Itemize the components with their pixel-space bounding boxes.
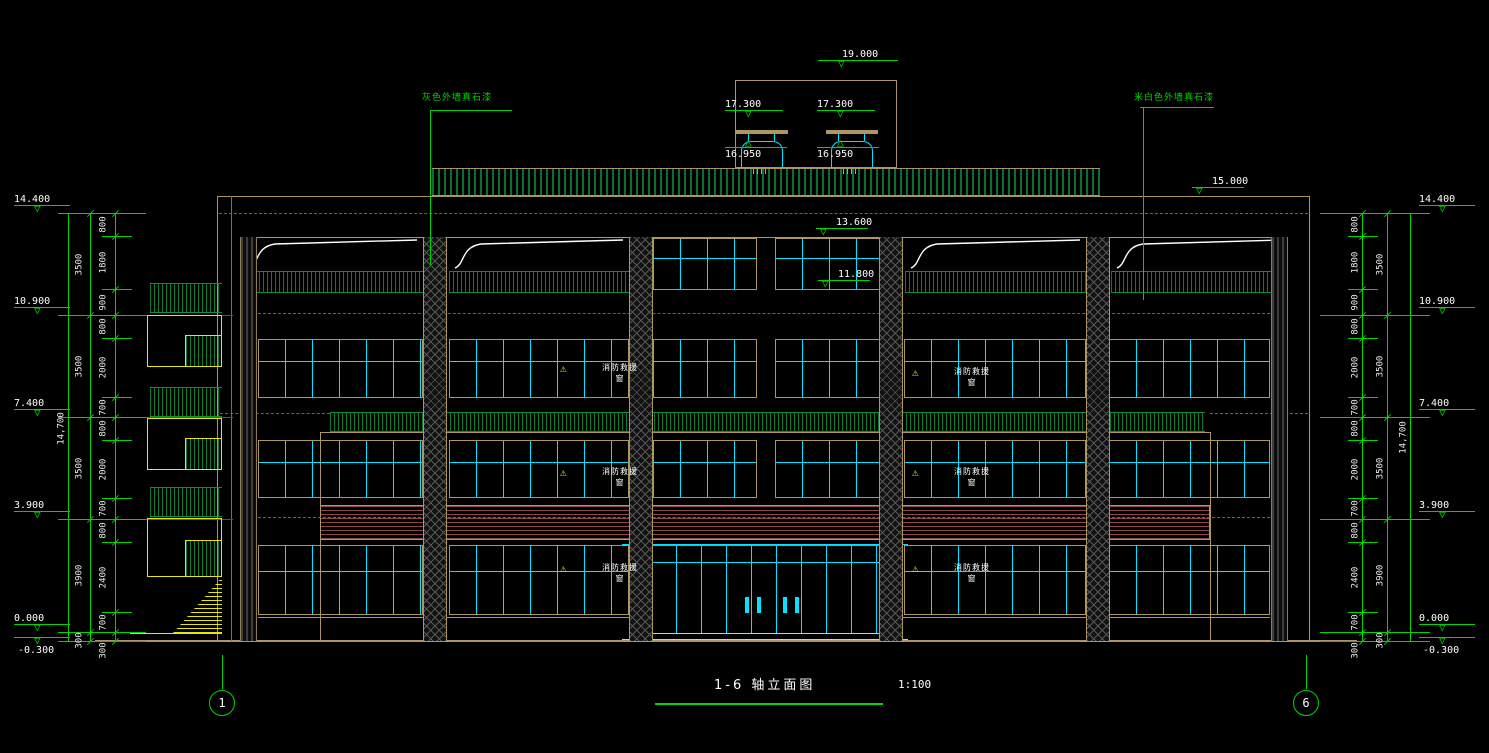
triangle-down-icon: ▽: [838, 58, 845, 69]
entrance-curtain-wall: [652, 545, 880, 633]
window: [904, 545, 1086, 615]
stair-profile: [173, 577, 222, 633]
dim-value: 3500: [1376, 347, 1387, 387]
warning-triangle-icon: ⚠: [912, 562, 919, 575]
dim-value: 300: [75, 621, 86, 661]
awning-curve: [905, 237, 1086, 271]
inner-box-top: [320, 432, 1210, 433]
dim-total: 14,700: [57, 409, 68, 449]
dim-line: [1387, 213, 1388, 642]
floor-line: [258, 517, 1270, 518]
triangle-down-icon: ▽: [822, 278, 829, 289]
dim-line: [115, 213, 116, 642]
elevation-marker: 16.950△: [725, 136, 787, 158]
dim-total: 14,700: [1399, 418, 1410, 458]
stair-base-line: [130, 633, 222, 634]
dim-value: 2000: [99, 450, 110, 490]
triangle-down-icon: ▽: [1439, 622, 1446, 633]
triangle-down-icon: ▽: [745, 108, 752, 119]
triangle-down-icon: ▽: [1196, 185, 1203, 196]
dim-ext: [1320, 417, 1430, 418]
drawing-title: 1-6 轴立面图: [714, 674, 815, 693]
window: [904, 440, 1086, 498]
balcony-railing: [905, 271, 1086, 293]
material-label-right: 米白色外墙真石漆: [1134, 90, 1214, 103]
window: [653, 238, 757, 290]
balcony-railing: [243, 271, 423, 293]
end-wall: [240, 237, 257, 641]
triangle-up-icon: △: [745, 137, 752, 148]
facade-column: [423, 237, 447, 641]
dim-value: 2000: [99, 348, 110, 388]
vent-cap: [736, 130, 788, 134]
door-handle: [783, 597, 787, 613]
elevation-marker: 19.000▽: [818, 49, 898, 71]
floor-line: [220, 413, 330, 414]
vent-mark: [843, 169, 857, 174]
triangle-down-icon: ▽: [1439, 407, 1446, 418]
door-handle: [745, 597, 749, 613]
triangle-down-icon: ▽: [34, 635, 41, 646]
balcony-railing-band: [330, 412, 1205, 432]
dim-line: [68, 213, 69, 642]
dim-line: [1362, 213, 1363, 642]
window: [1109, 339, 1270, 398]
facade-column: [1086, 237, 1110, 641]
triangle-down-icon: ▽: [1439, 305, 1446, 316]
axis-line: [222, 655, 223, 689]
balcony-railing: [449, 271, 629, 293]
triangle-down-icon: ▽: [34, 305, 41, 316]
leader-line: [430, 110, 431, 265]
dim-value: 800: [1351, 409, 1362, 449]
entrance-step: [622, 639, 908, 640]
title-underline: [655, 703, 883, 705]
triangle-down-icon: ▽: [1439, 635, 1446, 646]
warning-triangle-icon: ⚠: [912, 466, 919, 479]
window: [1109, 545, 1270, 615]
dim-value: 1800: [1351, 243, 1362, 283]
dim-value: 3500: [1376, 245, 1387, 285]
dim-value: 2400: [99, 558, 110, 598]
triangle-down-icon: ▽: [820, 226, 827, 237]
elevation-marker: 17.300▽: [817, 99, 875, 121]
axis-line: [1306, 655, 1307, 689]
dim-value: 800: [1351, 307, 1362, 347]
wing-louver: [185, 438, 222, 470]
triangle-down-icon: ▽: [1439, 509, 1446, 520]
wing-railing: [150, 283, 222, 313]
awning-curve: [449, 237, 629, 271]
awning-curve: [243, 237, 423, 271]
dim-line: [90, 213, 91, 642]
wing-louver: [185, 540, 222, 577]
awning-curve: [1111, 237, 1288, 271]
drawing-scale: 1:100: [898, 678, 931, 691]
dim-value: 800: [99, 205, 110, 245]
dim-ext: [1320, 315, 1430, 316]
triangle-down-icon: ▽: [1439, 203, 1446, 214]
door-handle: [795, 597, 799, 613]
elevation-marker: -0.300▽: [1419, 635, 1475, 657]
elevation-marker: 16.950△: [817, 136, 879, 158]
dim-value: 800: [1351, 205, 1362, 245]
vent-mark: [753, 169, 767, 174]
sill-line: [880, 617, 1270, 618]
window: [258, 339, 423, 398]
axis-bubble-6: 6: [1293, 690, 1319, 716]
dim-value: 800: [1351, 511, 1362, 551]
warning-triangle-icon: ⚠: [912, 366, 919, 379]
window: [258, 545, 423, 615]
dim-value: 3900: [1376, 556, 1387, 596]
dim-value: 2000: [1351, 450, 1362, 490]
dim-value: 800: [99, 307, 110, 347]
window: [775, 440, 880, 498]
wall-edge-line: [231, 196, 232, 641]
dim-value: 800: [99, 409, 110, 449]
sill-line: [258, 617, 652, 618]
balcony-railing: [1111, 271, 1288, 293]
leader-line: [430, 110, 512, 111]
elevation-marker: 17.300▽: [725, 99, 783, 121]
dim-value: 2400: [1351, 558, 1362, 598]
wing-railing: [150, 487, 222, 517]
material-label-left: 灰色外墙真石漆: [422, 90, 492, 103]
dim-ext: [1320, 213, 1430, 214]
warning-triangle-icon: ⚠: [560, 562, 567, 575]
dim-value: 3500: [75, 449, 86, 489]
triangle-down-icon: ▽: [34, 407, 41, 418]
triangle-up-icon: △: [837, 137, 844, 148]
dim-value: 300: [1376, 621, 1387, 661]
dim-ext: [1320, 519, 1430, 520]
dim-value: 3500: [1376, 449, 1387, 489]
warning-triangle-icon: ⚠: [560, 362, 567, 375]
warning-triangle-icon: ⚠: [560, 466, 567, 479]
elevation-drawing-canvas: ⚠消防救援窗 ⚠消防救援窗 ⚠消防救援窗 ⚠消防救援窗 ⚠消防救援窗 ⚠消防救援…: [0, 0, 1489, 753]
dim-value: 800: [99, 511, 110, 551]
door-handle: [757, 597, 761, 613]
dim-line: [1410, 213, 1411, 642]
louver-band: [320, 505, 1210, 540]
dim-value: 3500: [75, 245, 86, 285]
entrance-step: [632, 633, 898, 634]
roof-slab-line: [219, 213, 1308, 214]
elevation-marker: -0.300▽: [14, 635, 70, 657]
facade-column: [879, 237, 903, 641]
window: [775, 339, 880, 398]
floor-line: [258, 313, 1270, 314]
wing-railing: [150, 387, 222, 417]
dim-value: 2000: [1351, 348, 1362, 388]
window: [653, 440, 757, 498]
axis-bubble-1: 1: [209, 690, 235, 716]
floor-line: [1210, 413, 1308, 414]
triangle-down-icon: ▽: [34, 203, 41, 214]
end-wall: [1271, 237, 1288, 641]
dim-value: 3500: [75, 347, 86, 387]
dim-value: 1800: [99, 243, 110, 283]
elevation-marker: 15.000▽: [1192, 176, 1244, 198]
leader-line: [1143, 107, 1144, 300]
window: [904, 339, 1086, 398]
wing-louver: [185, 335, 222, 367]
triangle-down-icon: ▽: [837, 108, 844, 119]
window: [258, 440, 423, 498]
leader-line: [1140, 107, 1214, 108]
elevation-marker: 11.800▽: [818, 269, 870, 291]
triangle-down-icon: ▽: [34, 622, 41, 633]
vent-cap: [826, 130, 878, 134]
dim-value: 300: [1351, 631, 1362, 671]
window: [653, 339, 757, 398]
window: [1109, 440, 1270, 498]
triangle-down-icon: ▽: [34, 509, 41, 520]
dim-value: 3900: [75, 556, 86, 596]
dim-value: 300: [99, 631, 110, 671]
elevation-marker: 13.600▽: [816, 217, 868, 239]
